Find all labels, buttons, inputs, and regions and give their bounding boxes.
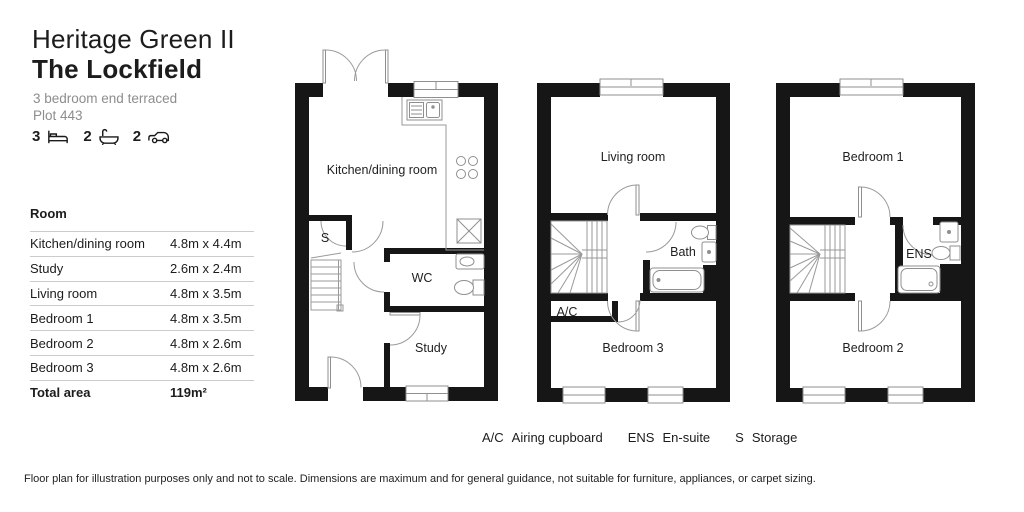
room-label-storage: S [321,231,329,245]
development-name: Heritage Green II [32,24,235,55]
room-label-wc: WC [412,271,433,285]
room-label-study: Study [415,341,447,355]
house-type: 3 bedroom end terraced [33,90,177,107]
stat-cars: 2 [133,128,171,145]
room-label-airing: A/C [557,305,578,319]
table-header: Room [30,203,254,231]
table-row: Kitchen/dining room 4.8m x 4.4m [30,231,254,256]
ensuite-basin [940,222,958,242]
first-floor-plan: Living room Bath A/C Bedroom 3 [536,78,736,408]
stats-row: 3 2 2 [32,128,171,145]
legend-abbr: S [735,430,744,445]
table-row: Bedroom 1 4.8m x 3.5m [30,305,254,330]
total-area-value: 119m² [170,385,207,400]
plan-legend: A/C Airing cupboard ENS En-suite S Stora… [482,430,797,445]
bathtub [650,268,704,292]
bath-icon [99,128,119,145]
room-name: Bedroom 2 [30,336,170,351]
legend-abbr: ENS [628,430,655,445]
table-row: Study 2.6m x 2.4m [30,256,254,281]
second-floor-plan: Bedroom 1 ENS Bedroom 2 [773,78,978,408]
kitchen-unit [457,219,481,243]
legend-item: S Storage [735,430,797,445]
room-dims: 4.8m x 2.6m [170,336,242,351]
stat-beds: 3 [32,128,69,145]
wc-toilet [455,280,485,295]
total-area-label: Total area [30,385,170,400]
room-dims: 4.8m x 2.6m [170,360,242,375]
front-door [328,357,361,388]
legend-item: A/C Airing cupboard [482,430,603,445]
room-name: Bedroom 3 [30,360,170,375]
room-label-bedroom3: Bedroom 3 [602,341,663,355]
stairs [790,225,845,293]
room-dims: 4.8m x 4.4m [170,236,242,251]
interior-doors [321,221,420,345]
hob [457,157,478,179]
room-label-bedroom1: Bedroom 1 [842,150,903,164]
room-label-bath: Bath [670,245,696,259]
stairs [551,221,607,293]
room-dims: 4.8m x 3.5m [170,311,242,326]
room-label-ensuite: ENS [906,247,932,261]
room-dims: 4.8m x 3.5m [170,286,242,301]
bath-toilet [692,226,717,240]
car-icon [148,129,171,144]
ensuite-toilet [932,246,960,260]
legend-label: Storage [752,430,798,445]
second-floor-drawing [773,78,978,408]
ground-floor-drawing [295,22,500,407]
room-dims: 2.6m x 2.4m [170,261,242,276]
bath-count: 2 [83,128,91,145]
bed-icon [47,129,69,144]
bath-basin [702,242,716,262]
table-row: Bedroom 3 4.8m x 2.6m [30,355,254,380]
french-doors [323,50,388,83]
floorplan-page: Heritage Green II The Lockfield 3 bedroo… [0,0,1024,512]
house-subtitle: 3 bedroom end terraced Plot 443 [33,90,177,124]
stat-baths: 2 [83,128,118,145]
room-label-kitchen: Kitchen/dining room [327,163,437,177]
room-name: Kitchen/dining room [30,236,170,251]
first-floor-drawing [536,78,736,408]
ground-floor-plan: Kitchen/dining room S WC Study [295,22,500,407]
legend-abbr: A/C [482,430,504,445]
bed-count: 3 [32,128,40,145]
legend-item: ENS En-suite [628,430,710,445]
room-label-bedroom2: Bedroom 2 [842,341,903,355]
stairs [311,253,343,311]
room-label-living: Living room [601,150,666,164]
room-name: Bedroom 1 [30,311,170,326]
table-row: Bedroom 2 4.8m x 2.6m [30,330,254,355]
table-total-row: Total area 119m² [30,380,254,405]
plot-number: Plot 443 [33,107,177,124]
house-name: The Lockfield [32,54,202,85]
room-dimensions-table: Room Kitchen/dining room 4.8m x 4.4m Stu… [30,203,254,405]
car-count: 2 [133,128,141,145]
legend-label: En-suite [662,430,710,445]
room-name: Study [30,261,170,276]
shower [898,266,940,293]
legend-label: Airing cupboard [512,430,603,445]
room-name: Living room [30,286,170,301]
wc-basin [456,254,484,269]
kitchen-sink [407,100,442,120]
disclaimer-text: Floor plan for illustration purposes onl… [24,473,816,485]
table-row: Living room 4.8m x 3.5m [30,281,254,306]
